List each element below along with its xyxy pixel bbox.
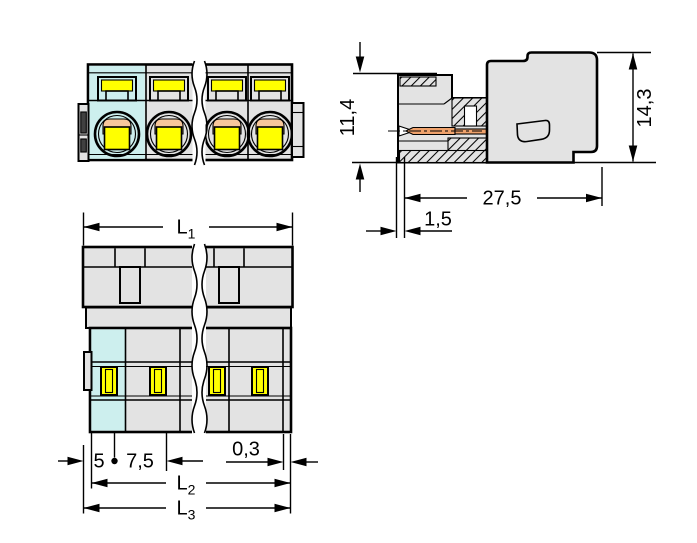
bottom-solder-pin-3	[209, 367, 225, 395]
pole-center-dot	[111, 458, 117, 464]
dim-l2: L2	[92, 432, 291, 498]
side-contact-slot	[465, 106, 477, 126]
arrow-right-icon	[68, 457, 84, 466]
arrow-left-icon	[405, 194, 421, 203]
arrow-right-icon	[268, 458, 284, 467]
bottom-solder-pin-4	[252, 367, 268, 395]
bottom-left-latch	[84, 352, 92, 390]
dim-pin-setback-label: 1,5	[424, 209, 452, 231]
dim-body-length-label: 27,5	[483, 188, 522, 210]
arrow-right-icon	[277, 223, 293, 232]
dim-l3: L3	[84, 498, 291, 523]
arrow-right-icon	[275, 479, 291, 488]
dim-total-height-label: 14,3	[634, 89, 656, 128]
arrow-left-icon	[84, 223, 100, 232]
dim-total-height: 14,3	[597, 53, 656, 162]
dim-end-gap-label: 0,3	[232, 439, 260, 461]
side-latch-recess	[517, 120, 550, 141]
connector-technical-drawing: L1 11,4 14,3 27,5	[0, 0, 697, 543]
arrow-left-icon	[92, 479, 108, 488]
arrow-left-icon	[84, 504, 100, 513]
front-right-latch	[292, 103, 304, 157]
front-view	[79, 60, 304, 166]
arrow-right-icon	[586, 194, 602, 203]
arrow-right-icon	[381, 227, 397, 236]
bottom-break-lines	[192, 244, 207, 434]
arrow-left-icon	[405, 227, 421, 236]
bottom-solder-pin-2	[150, 367, 166, 395]
side-male-housing	[487, 53, 597, 163]
arrow-up-icon	[629, 54, 638, 70]
dim-l3-label: L3	[177, 498, 196, 523]
dim-l2-label: L2	[177, 473, 196, 498]
dim-pole-pitch-label: 7,5	[126, 451, 154, 473]
side-view	[352, 53, 656, 163]
bottom-collar-band	[86, 308, 291, 329]
side-hatch-top-strip	[400, 77, 436, 86]
front-left-latch	[79, 104, 89, 161]
dim-pin-setback: 1,5	[366, 209, 452, 236]
dim-l1: L1	[84, 213, 293, 246]
dim-socket-height-label: 11,4	[337, 99, 359, 136]
dim-l1-label: L1	[177, 217, 196, 242]
bottom-view	[83, 244, 293, 434]
technical-drawing-canvas: L1 11,4 14,3 27,5	[0, 0, 697, 543]
side-hatch-lower-block	[448, 138, 487, 151]
arrow-down-icon	[629, 146, 638, 162]
dim-edge-to-pole-label: 5	[93, 451, 104, 473]
front-break-lines	[192, 60, 207, 166]
arrow-left-icon	[167, 457, 183, 466]
arrow-up-icon	[356, 164, 365, 180]
arrow-left-icon	[291, 458, 307, 467]
arrow-down-icon	[356, 57, 365, 73]
dim-end-gap: 0,3	[226, 434, 318, 514]
side-hatch-bottom-strip	[400, 151, 488, 163]
arrow-right-icon	[275, 504, 291, 513]
bottom-solder-pin-1	[101, 367, 117, 395]
